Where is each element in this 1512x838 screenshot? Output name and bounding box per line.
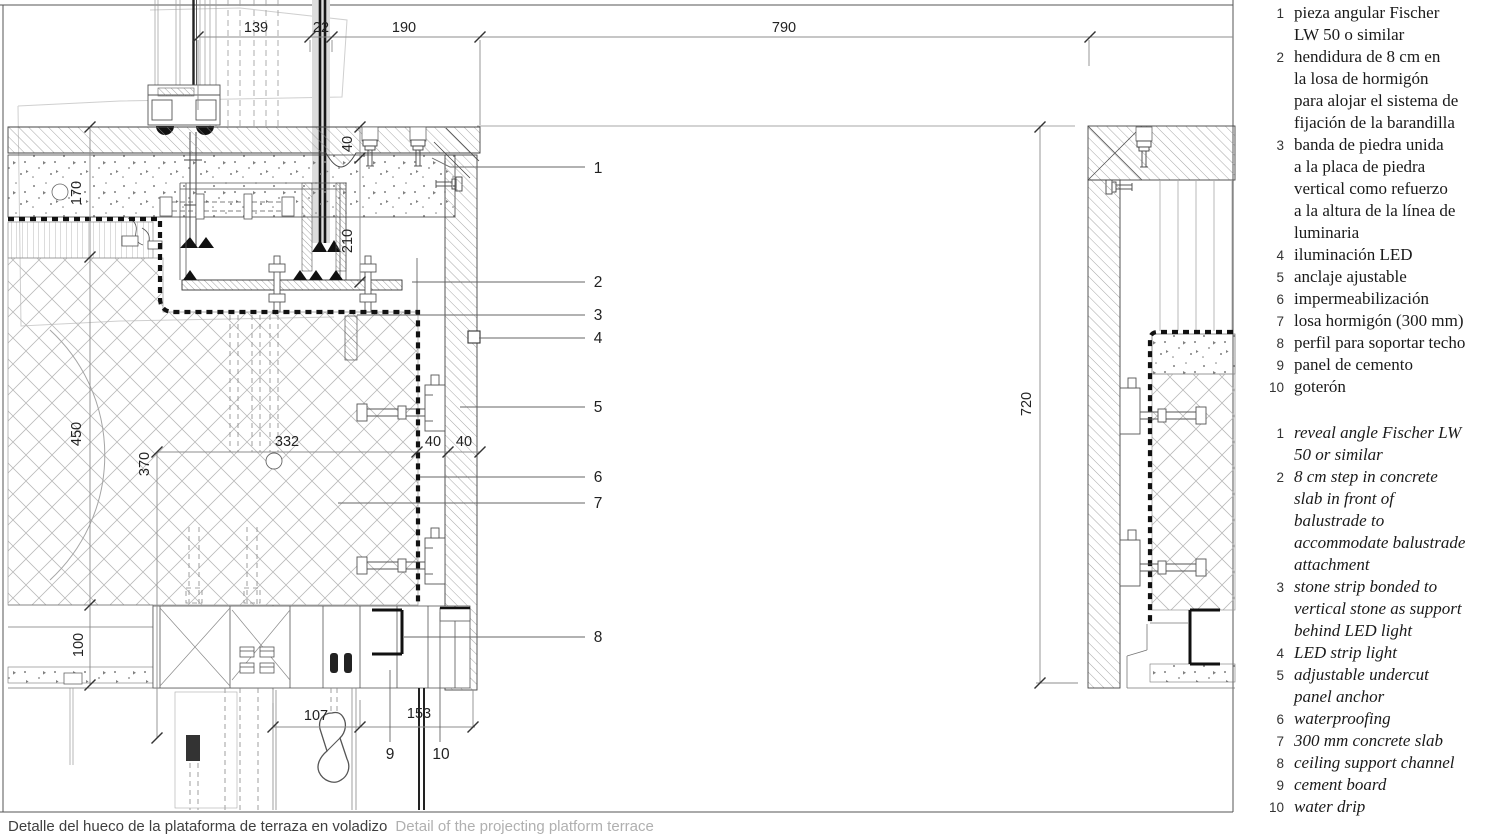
callout-1: 1 bbox=[594, 160, 603, 177]
legend-item-number: 2 bbox=[1258, 46, 1284, 65]
water-drip-edge bbox=[440, 608, 470, 621]
caption-english: Detail of the projecting platform terrac… bbox=[395, 818, 653, 835]
stone-strip bbox=[345, 316, 357, 360]
legend-item: 3banda de piedra unida a la placa de pie… bbox=[1258, 134, 1508, 244]
dim-40-vertical: 40 bbox=[340, 136, 356, 152]
legend-item: 6waterproofing bbox=[1258, 708, 1508, 730]
sliding-track-assembly bbox=[153, 606, 470, 688]
legend-item-number: 1 bbox=[1258, 422, 1284, 441]
legend-item-number: 9 bbox=[1258, 354, 1284, 373]
legend-item: 9panel de cemento bbox=[1258, 354, 1508, 376]
legend-item-text: perfil para soportar techo bbox=[1294, 332, 1508, 354]
ceiling-support-channel-right bbox=[1190, 610, 1220, 664]
legend-item-number: 4 bbox=[1258, 244, 1284, 263]
legend-item-text: reveal angle Fischer LW 50 or similar bbox=[1294, 422, 1508, 466]
legend-item-number: 6 bbox=[1258, 708, 1284, 727]
dim-190: 190 bbox=[392, 20, 416, 36]
legend-item-number: 3 bbox=[1258, 576, 1284, 595]
led-strip bbox=[468, 331, 480, 343]
legend-item-number: 7 bbox=[1258, 310, 1284, 329]
legend-item-text: water drip bbox=[1294, 796, 1508, 818]
callout-7: 7 bbox=[594, 495, 603, 512]
legend-item: 4LED strip light bbox=[1258, 642, 1508, 664]
vertical-stone-cladding-right bbox=[1088, 180, 1120, 688]
legend-item-text: goterón bbox=[1294, 376, 1508, 398]
caption-spanish: Detalle del hueco de la plataforma de te… bbox=[8, 818, 387, 835]
legend-item-number: 8 bbox=[1258, 752, 1284, 771]
callout-2: 2 bbox=[594, 274, 603, 291]
legend-item: 1reveal angle Fischer LW 50 or similar bbox=[1258, 422, 1508, 466]
callout-6: 6 bbox=[594, 469, 603, 486]
legend-item-number: 7 bbox=[1258, 730, 1284, 749]
legend-item: 4iluminación LED bbox=[1258, 244, 1508, 266]
legend-item-number: 8 bbox=[1258, 332, 1284, 351]
legend-item-number: 6 bbox=[1258, 288, 1284, 307]
legend-item-text: impermeabilización bbox=[1294, 288, 1508, 310]
legend-item-text: adjustable undercut panel anchor bbox=[1294, 664, 1508, 708]
legend-item: 1pieza angular Fischer LW 50 o similar bbox=[1258, 2, 1508, 46]
legend: 1pieza angular Fischer LW 50 o similar 2… bbox=[1258, 2, 1508, 818]
dim-139: 139 bbox=[244, 20, 268, 36]
legend-english: 1reveal angle Fischer LW 50 or similar 2… bbox=[1258, 422, 1508, 818]
legend-item-number: 5 bbox=[1258, 266, 1284, 285]
stone-band-right bbox=[1088, 126, 1235, 180]
dim-450: 450 bbox=[69, 422, 85, 446]
legend-item-text: panel de cemento bbox=[1294, 354, 1508, 376]
legend-item: 7300 mm concrete slab bbox=[1258, 730, 1508, 752]
legend-item-number: 10 bbox=[1258, 796, 1284, 815]
detail-drawing: 139 22 190 790 40 210 170 450 370 100 72… bbox=[0, 0, 1240, 838]
legend-item-text: 300 mm concrete slab bbox=[1294, 730, 1508, 752]
legend-item: 7losa hormigón (300 mm) bbox=[1258, 310, 1508, 332]
legend-item-text: hendidura de 8 cm en la losa de hormigón… bbox=[1294, 46, 1508, 134]
dim-720: 720 bbox=[1019, 392, 1035, 416]
dim-210: 210 bbox=[340, 229, 356, 253]
dim-40-b: 40 bbox=[456, 434, 472, 450]
legend-item-text: banda de piedra unida a la placa de pied… bbox=[1294, 134, 1508, 244]
legend-item: 3stone strip bonded to vertical stone as… bbox=[1258, 576, 1508, 642]
legend-item-text: losa hormigón (300 mm) bbox=[1294, 310, 1508, 332]
legend-item: 8ceiling support channel bbox=[1258, 752, 1508, 774]
legend-item-text: pieza angular Fischer LW 50 o similar bbox=[1294, 2, 1508, 46]
dim-170: 170 bbox=[69, 181, 85, 205]
callout-5: 5 bbox=[594, 399, 603, 416]
legend-item: 8perfil para soportar techo bbox=[1258, 332, 1508, 354]
dim-332: 332 bbox=[275, 434, 299, 450]
legend-item: 6impermeabilización bbox=[1258, 288, 1508, 310]
legend-item: 5anclaje ajustable bbox=[1258, 266, 1508, 288]
legend-item-text: LED strip light bbox=[1294, 642, 1508, 664]
architectural-detail-page: 139 22 190 790 40 210 170 450 370 100 72… bbox=[0, 0, 1512, 838]
callout-3: 3 bbox=[594, 307, 603, 324]
legend-item-text: 8 cm step in concrete slab in front of b… bbox=[1294, 466, 1508, 576]
legend-item-text: cement board bbox=[1294, 774, 1508, 796]
legend-item-number: 3 bbox=[1258, 134, 1284, 153]
legend-item-number: 1 bbox=[1258, 2, 1284, 21]
legend-item: 9cement board bbox=[1258, 774, 1508, 796]
callout-10: 10 bbox=[432, 746, 450, 763]
callout-8: 8 bbox=[594, 629, 603, 646]
legend-item-number: 4 bbox=[1258, 642, 1284, 661]
callout-9: 9 bbox=[386, 746, 395, 763]
caption: Detalle del hueco de la plataforma de te… bbox=[8, 818, 654, 835]
callout-4: 4 bbox=[594, 330, 603, 347]
legend-item: 5adjustable undercut panel anchor bbox=[1258, 664, 1508, 708]
dim-153: 153 bbox=[407, 706, 431, 722]
legend-item-number: 2 bbox=[1258, 466, 1284, 485]
dim-22: 22 bbox=[313, 20, 329, 36]
dim-790: 790 bbox=[772, 20, 796, 36]
legend-item-text: iluminación LED bbox=[1294, 244, 1508, 266]
legend-item-number: 10 bbox=[1258, 376, 1284, 395]
legend-item-text: stone strip bonded to vertical stone as … bbox=[1294, 576, 1508, 642]
legend-item: 28 cm step in concrete slab in front of … bbox=[1258, 466, 1508, 576]
legend-item-number: 5 bbox=[1258, 664, 1284, 683]
dim-100: 100 bbox=[71, 633, 87, 657]
legend-item: 2hendidura de 8 cm en la losa de hormigó… bbox=[1258, 46, 1508, 134]
dim-107: 107 bbox=[304, 708, 328, 724]
dim-40-a: 40 bbox=[425, 434, 441, 450]
legend-item-text: anclaje ajustable bbox=[1294, 266, 1508, 288]
concrete-right bbox=[1152, 334, 1235, 374]
legend-item: 10goterón bbox=[1258, 376, 1508, 398]
legend-item-text: waterproofing bbox=[1294, 708, 1508, 730]
dim-370: 370 bbox=[137, 452, 153, 476]
legend-spanish: 1pieza angular Fischer LW 50 o similar 2… bbox=[1258, 2, 1508, 398]
legend-item: 10water drip bbox=[1258, 796, 1508, 818]
legend-item-number: 9 bbox=[1258, 774, 1284, 793]
legend-item-text: ceiling support channel bbox=[1294, 752, 1508, 774]
cement-board-right bbox=[1150, 664, 1235, 682]
